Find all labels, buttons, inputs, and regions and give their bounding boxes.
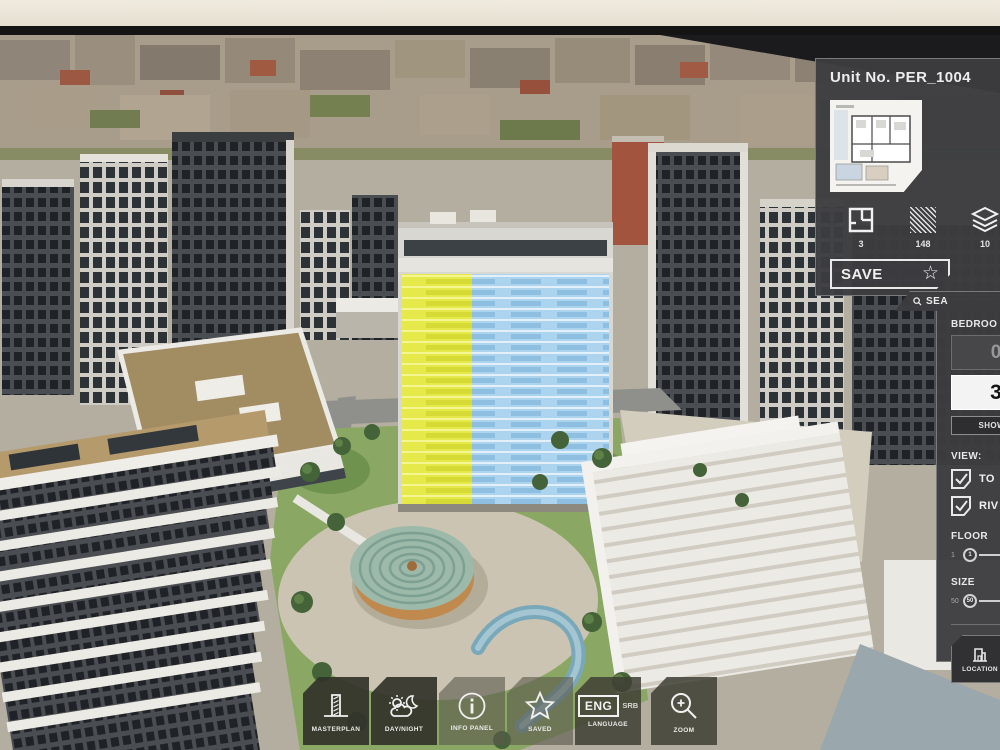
zoom-icon <box>667 689 701 723</box>
language-toggle: ENG SRB <box>578 695 638 717</box>
checkbox-checked-icon <box>951 469 971 489</box>
language-label: LANGUAGE <box>588 721 628 728</box>
floor-slider-handle[interactable]: 1 <box>963 548 977 562</box>
location-button[interactable]: LOCATION <box>951 635 1000 683</box>
search-panel-header[interactable]: SEA <box>895 291 1000 311</box>
saved-button[interactable]: SAVED <box>507 677 573 745</box>
zoom-label: ZOOM <box>674 727 695 734</box>
view-label: VIEW: <box>951 451 1000 462</box>
wall-above-screen <box>0 0 1000 26</box>
masterplan-label: MASTERPLAN <box>312 726 361 733</box>
star-icon: ☆ <box>922 264 939 283</box>
info-panel-label: INFO PANEL <box>451 725 493 732</box>
sun-moon-icon <box>386 690 422 722</box>
search-icon <box>913 297 922 306</box>
save-label: SAVE <box>841 266 883 283</box>
view-option-river[interactable]: RIV <box>951 496 1000 516</box>
unit-title: Unit No. PER_1004 <box>830 69 1000 86</box>
day-night-button[interactable]: DAY/NIGHT <box>371 677 437 745</box>
language-current: ENG <box>578 695 620 717</box>
save-button[interactable]: SAVE ☆ <box>830 259 950 289</box>
zoom-button[interactable]: ZOOM <box>651 677 717 745</box>
saved-label: SAVED <box>528 726 552 733</box>
show-all-button[interactable]: SHOW A <box>951 416 1000 435</box>
floor-slider-track[interactable] <box>979 554 1000 556</box>
floorplan-drawing <box>830 100 922 192</box>
bedroom-option-3[interactable]: 3 <box>951 375 1000 410</box>
stat-area-value: 148 <box>915 239 930 249</box>
floor-slider[interactable]: 1 1 <box>951 548 1000 562</box>
stat-rooms-value: 3 <box>858 239 863 249</box>
size-slider[interactable]: 50 50 <box>951 594 1000 608</box>
area-icon <box>910 207 936 233</box>
masterplan-button[interactable]: MASTERPLAN <box>303 677 369 745</box>
floors-icon <box>970 204 1000 236</box>
size-slider-handle[interactable]: 50 <box>963 594 977 608</box>
building-icon <box>320 690 352 722</box>
bedroom-option-0[interactable]: 0 <box>951 335 1000 370</box>
star-icon <box>523 690 557 722</box>
floor-min-label: 1 <box>951 552 963 559</box>
stat-floors: 10 <box>954 204 1000 249</box>
location-building-icon <box>971 645 989 663</box>
view-option-tower-label: TO <box>979 473 995 485</box>
screen-bezel <box>0 26 1000 35</box>
size-slider-track[interactable] <box>979 600 1000 602</box>
stat-floors-value: 10 <box>980 239 990 249</box>
day-night-label: DAY/NIGHT <box>385 726 423 733</box>
floor-label: FLOOR <box>951 531 1000 542</box>
info-icon <box>457 691 487 721</box>
search-panel: SEA BEDROO 0 3 SHOW A VIEW: TO RIV FLOOR… <box>936 298 1000 662</box>
stat-area: 148 <box>892 204 954 249</box>
language-alternate: SRB <box>622 701 638 710</box>
stat-rooms: 3 <box>830 204 892 249</box>
view-option-river-label: RIV <box>979 500 999 512</box>
unit-info-panel: Unit No. PER_1004 3 <box>815 58 1000 296</box>
info-panel-button[interactable]: INFO PANEL <box>439 677 505 745</box>
floorplan-icon <box>847 204 875 236</box>
search-header-label: SEA <box>926 296 948 307</box>
size-label: SIZE <box>951 577 1000 588</box>
size-min-label: 50 <box>951 598 963 605</box>
view-option-tower[interactable]: TO <box>951 469 1000 489</box>
bottom-toolbar: MASTERPLAN DAY/NIGHT INFO PANEL SAVED EN… <box>303 677 717 745</box>
floorplan-thumbnail[interactable] <box>830 100 922 192</box>
language-button[interactable]: ENG SRB LANGUAGE <box>575 677 641 745</box>
unit-stats: 3 148 10 <box>830 204 1000 249</box>
location-label: LOCATION <box>962 666 998 673</box>
bedrooms-label: BEDROO <box>951 319 1000 330</box>
panel-divider <box>951 624 1000 625</box>
checkbox-checked-icon <box>951 496 971 516</box>
highlighted-building[interactable] <box>398 210 613 512</box>
white-building-right <box>579 410 874 694</box>
